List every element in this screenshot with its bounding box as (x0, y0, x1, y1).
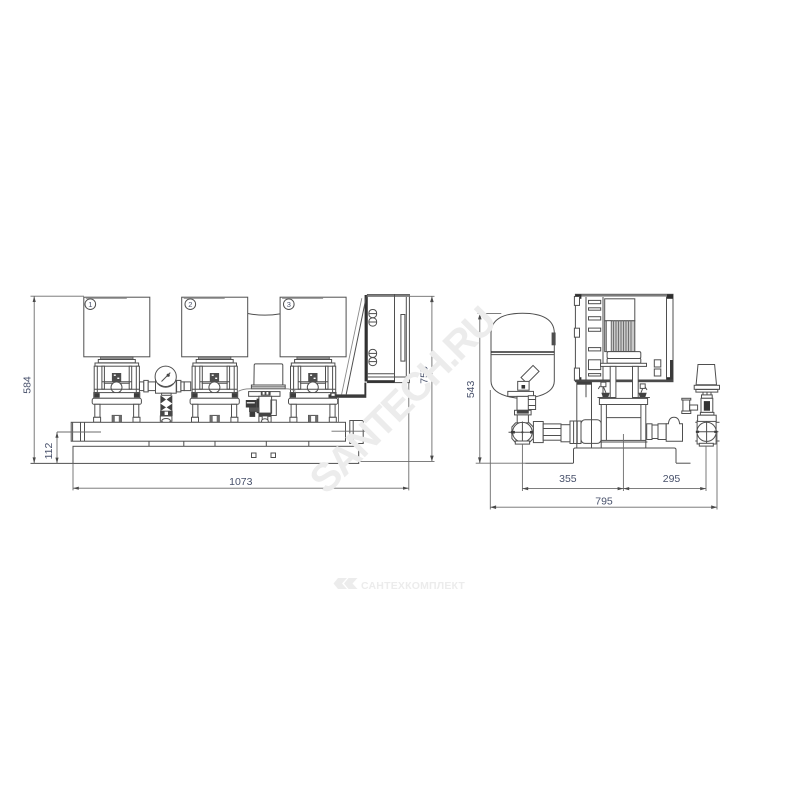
svg-text:295: 295 (663, 473, 681, 485)
svg-text:584: 584 (22, 376, 34, 394)
svg-text:3: 3 (287, 300, 291, 309)
svg-text:543: 543 (465, 380, 477, 398)
svg-text:САНТЕХКОМПЛЕКТ: САНТЕХКОМПЛЕКТ (361, 580, 465, 592)
svg-text:795: 795 (595, 496, 613, 508)
svg-text:1073: 1073 (229, 476, 253, 488)
svg-text:1: 1 (88, 300, 92, 309)
svg-text:2: 2 (188, 300, 192, 309)
svg-text:112: 112 (43, 442, 55, 459)
svg-text:355: 355 (559, 473, 577, 485)
